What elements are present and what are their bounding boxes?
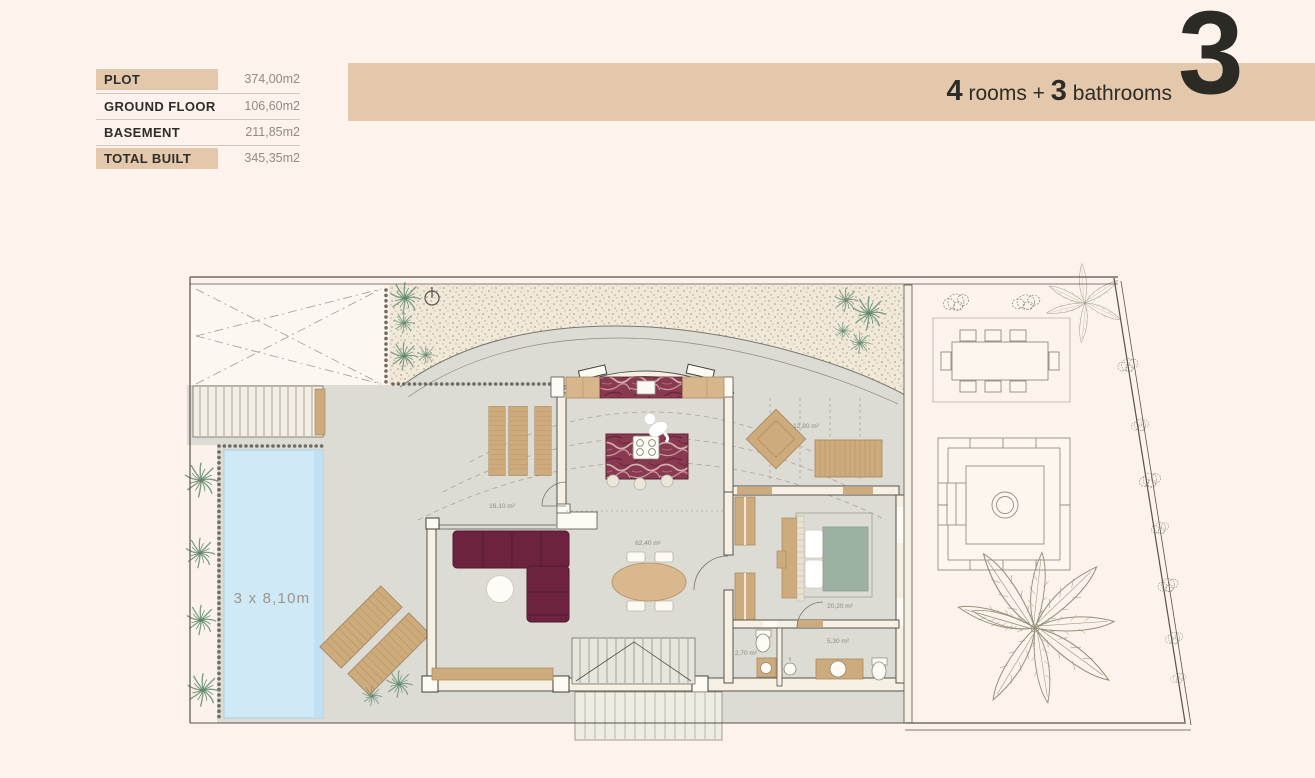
outdoor-area-label: 12,80 m² — [793, 423, 819, 430]
kitchen-east-wall — [724, 386, 733, 492]
kitchen-back-counter — [566, 377, 724, 398]
door-leaf — [797, 620, 823, 627]
east-window — [897, 507, 904, 543]
door-leaf — [737, 487, 772, 494]
floor-plan-drawing: 3 x 8,10m 16,10 m² 62,40 m² 12,80 m² 20,… — [0, 0, 1315, 778]
entrance-bench — [557, 512, 597, 529]
exterior-stairs — [575, 692, 722, 740]
interior-stairs — [572, 638, 695, 684]
living-area-label: 62,40 m² — [635, 540, 661, 547]
kitchen-sink — [637, 381, 655, 394]
pillow — [805, 560, 823, 588]
water-feature — [938, 438, 1070, 570]
west-wall — [427, 524, 436, 684]
terrace-area-label: 16,10 m² — [489, 503, 515, 510]
cooktop — [633, 436, 659, 459]
kitchen-west-wall — [557, 386, 566, 506]
wc-divider-wall — [777, 628, 782, 686]
coffee-table — [487, 576, 514, 603]
pool-dimension-label: 3 x 8,10m — [234, 590, 311, 607]
window-bench — [432, 668, 553, 680]
entrance-jamb — [557, 504, 570, 513]
driveway-court — [190, 285, 384, 385]
garden-fence-wall — [904, 285, 912, 723]
outdoor-wood-table — [815, 440, 882, 477]
wc-area-label: 2,70 m² — [735, 650, 758, 657]
dining-table — [612, 563, 686, 601]
door-leaf — [843, 487, 873, 494]
kitchen-jamb-left — [551, 377, 564, 397]
plan-sheet-page: PLOT 374,00m2 GROUND FLOOR 106,60m2 BASE… — [0, 0, 1315, 778]
hall-wall-upper — [724, 492, 733, 555]
bathroom-area-label: 5,30 m² — [827, 638, 850, 645]
bedroom-area-label: 20,20 m² — [827, 603, 853, 610]
door-gap — [763, 621, 777, 627]
pillow — [805, 530, 823, 558]
driveway-stairs — [193, 386, 325, 437]
duvet — [823, 527, 868, 591]
hall-wall-lower — [724, 590, 733, 683]
pool — [224, 450, 323, 718]
